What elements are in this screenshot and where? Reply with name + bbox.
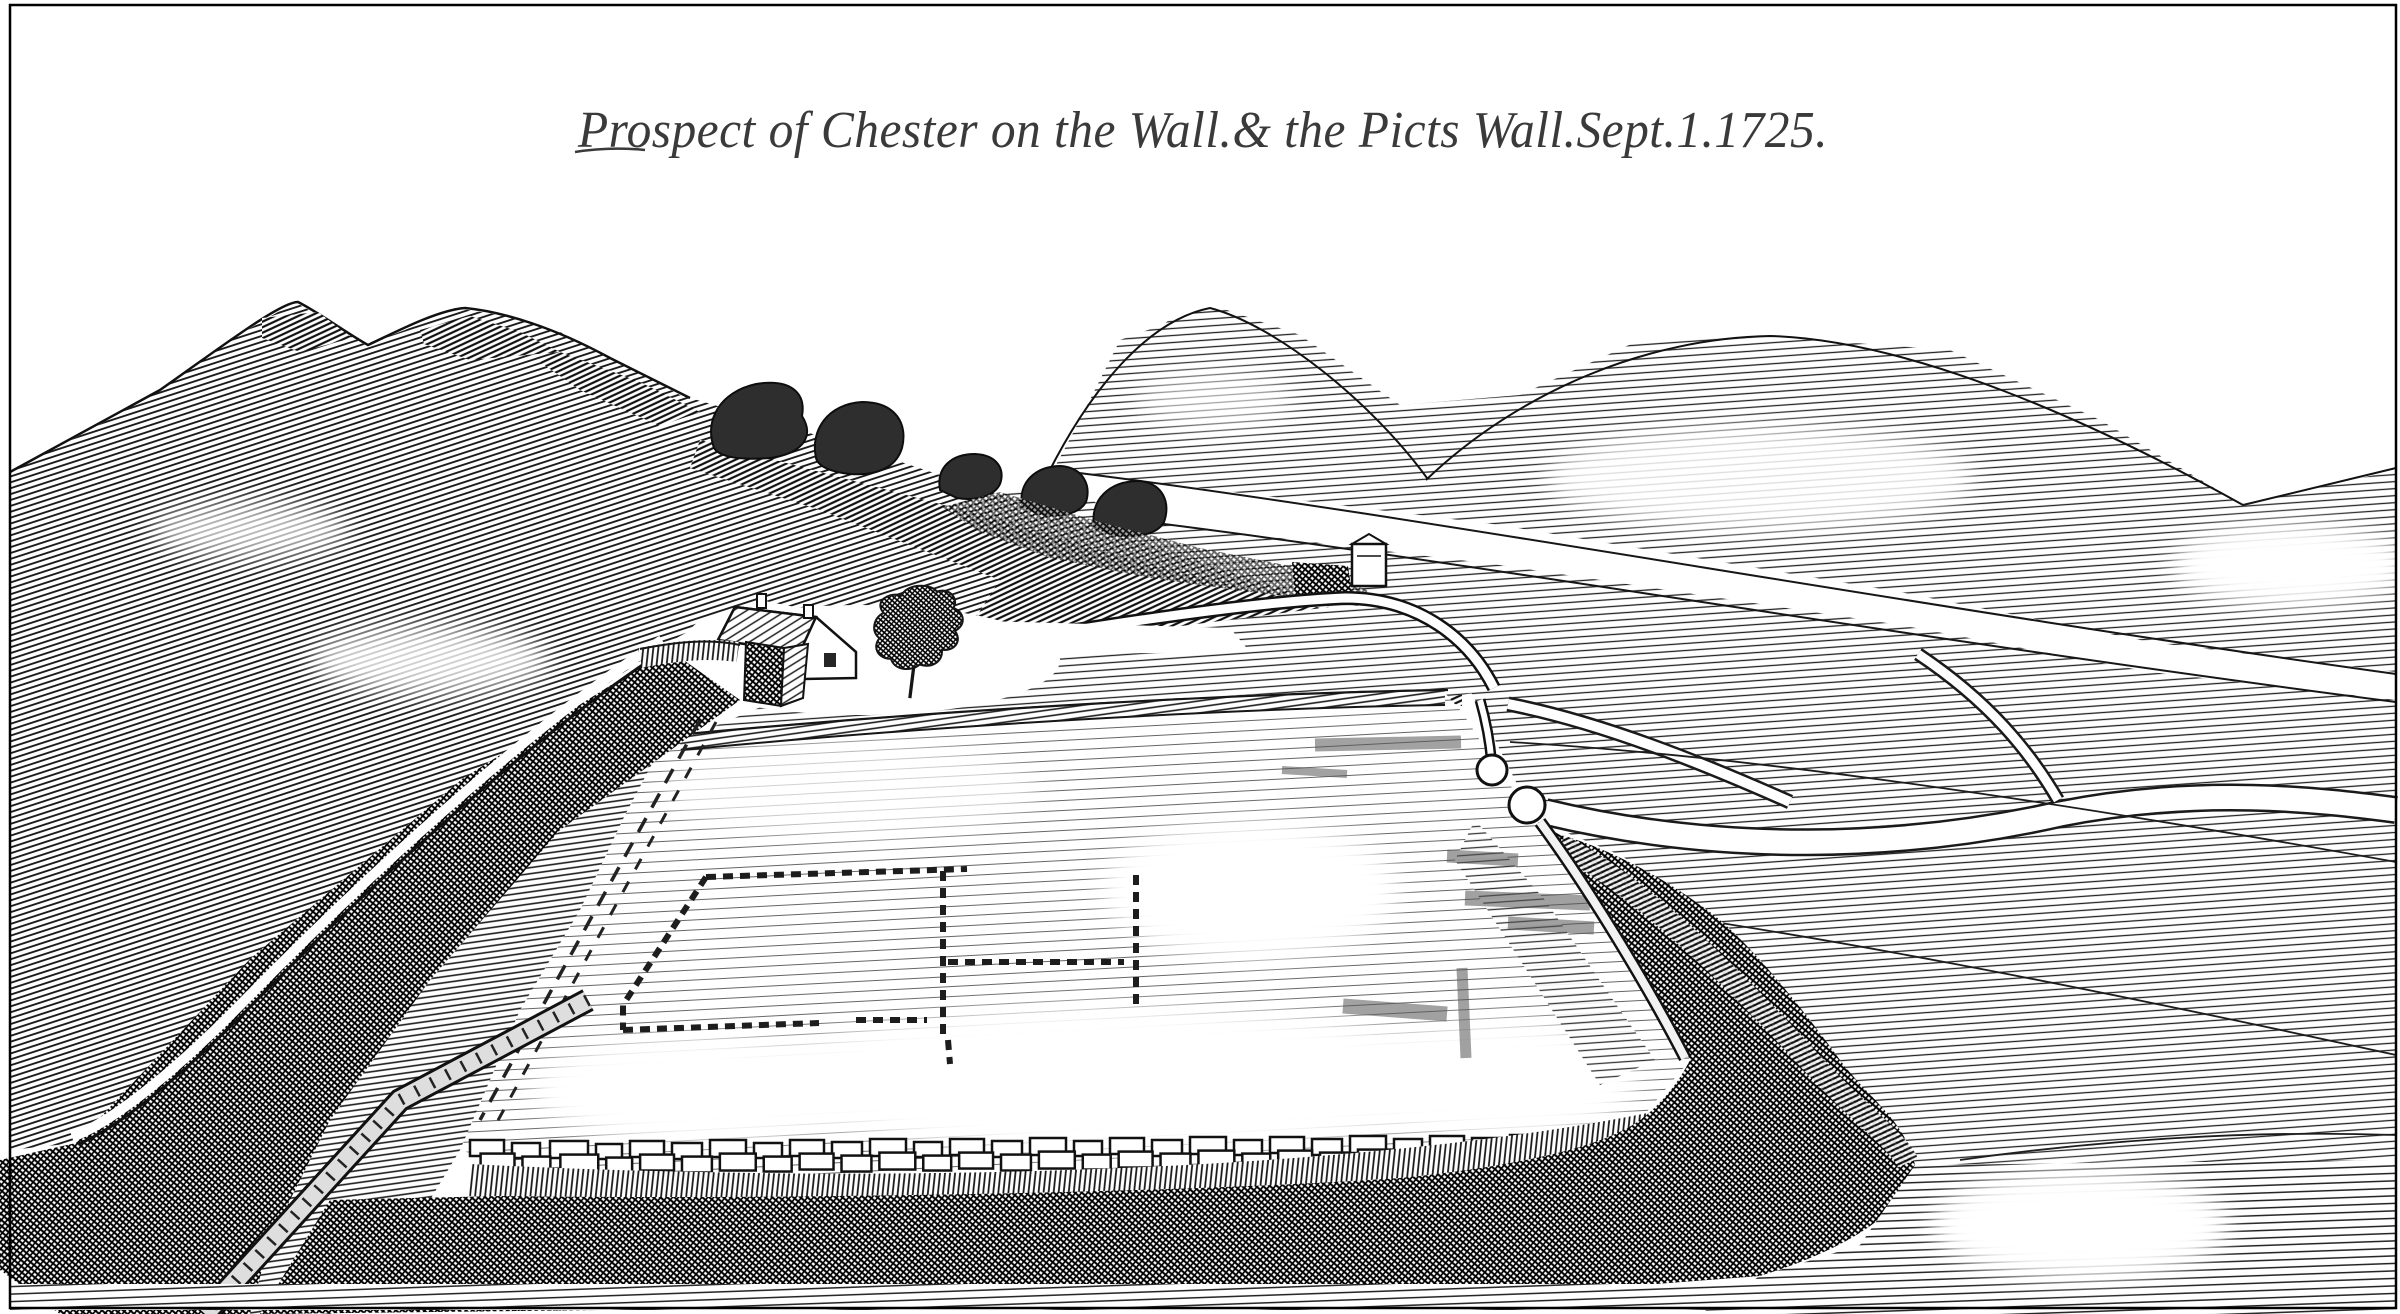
svg-text:Prospect of Chester on the Wal: Prospect of Chester on the Wall.& the Pi… xyxy=(577,102,1828,159)
